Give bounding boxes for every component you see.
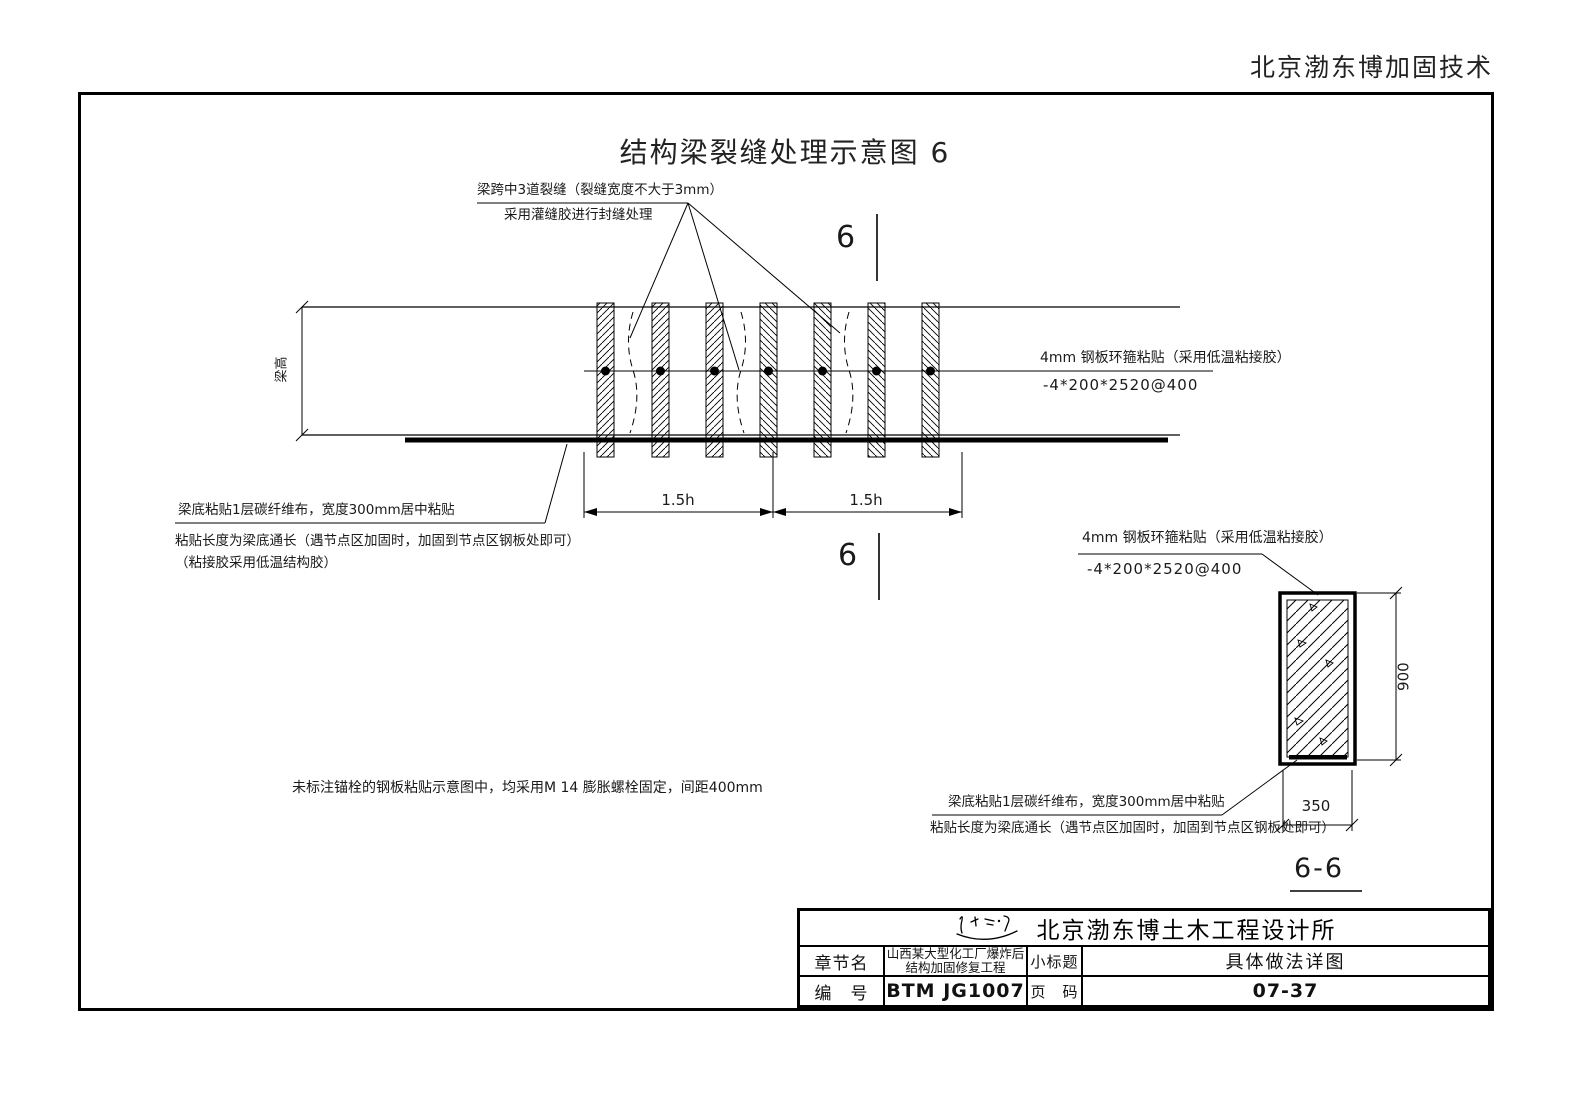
steel-plate bbox=[706, 303, 723, 457]
steel-plate bbox=[652, 303, 669, 457]
section-fiber-note-line2: 粘贴长度为梁底通长（遇节点区加固时，加固到节点区钢板处即可） bbox=[930, 821, 1335, 837]
section-mark-bottom-label: 6 bbox=[838, 539, 857, 574]
crack-note-line1: 梁跨中3道裂缝（裂缝宽度不大于3mm） bbox=[477, 183, 723, 199]
title-block-chapter-label: 章节名 bbox=[800, 945, 883, 975]
project-name-line1: 山西某大型化工厂爆炸后 bbox=[887, 947, 1025, 961]
title-block-page-value: 07-37 bbox=[1081, 975, 1488, 1005]
section-hoop-note-line1: 4mm 钢板环箍粘贴（采用低温粘接胶） bbox=[1082, 530, 1333, 546]
section-fiber-note-line1: 梁底粘贴1层碳纤维布，宽度300mm居中粘贴 bbox=[948, 795, 1225, 811]
section-concrete bbox=[1287, 600, 1348, 757]
carbon-fiber-strip bbox=[405, 438, 1168, 443]
anchor-bolt bbox=[710, 367, 719, 376]
crack-note-line2: 采用灌缝胶进行封缝处理 bbox=[504, 208, 653, 224]
steel-plate bbox=[760, 303, 777, 457]
title-block-header: 北京渤东博土木工程设计所 bbox=[800, 911, 1488, 945]
steel-plate bbox=[814, 303, 831, 457]
crack-line bbox=[845, 312, 853, 433]
anchor-bolt bbox=[818, 367, 827, 376]
title-block-number-value: BTM JG1007 bbox=[883, 975, 1026, 1005]
hoop-note-line1: 4mm 钢板环箍粘贴（采用低温粘接胶） bbox=[1040, 350, 1291, 366]
section-view-label: 6-6 bbox=[1294, 853, 1344, 884]
section-carbon-fiber bbox=[1289, 755, 1347, 760]
section-height-dim-label: 900 bbox=[1395, 657, 1412, 697]
section-width-dim-label: 350 bbox=[1288, 798, 1344, 815]
title-block-subtitle-value: 具体做法详图 bbox=[1081, 945, 1488, 975]
steel-plate bbox=[597, 303, 614, 457]
span-dim-left-label: 1.5h bbox=[646, 492, 710, 509]
company-logo bbox=[952, 913, 1027, 943]
fiber-note-line1: 梁底粘贴1层碳纤维布，宽度300mm居中粘贴 bbox=[178, 503, 455, 519]
anchor-bolt bbox=[601, 367, 610, 376]
title-block-project-name: 山西某大型化工厂爆炸后 结构加固修复工程 bbox=[883, 945, 1026, 975]
crack-line bbox=[629, 312, 637, 433]
title-block-subtitle-label: 小标题 bbox=[1026, 945, 1081, 975]
anchor-bolt-note: 未标注锚栓的钢板粘贴示意图中，均采用M 14 膨胀螺栓固定，间距400mm bbox=[292, 780, 763, 796]
title-block-number-label: 编 号 bbox=[800, 975, 883, 1005]
title-block: 北京渤东博土木工程设计所 章节名 山西某大型化工厂爆炸后 结构加固修复工程 小标… bbox=[797, 908, 1491, 1008]
anchor-bolt bbox=[656, 367, 665, 376]
anchor-bolt bbox=[764, 367, 773, 376]
title-block-page-label: 页 码 bbox=[1026, 975, 1081, 1005]
hoop-note-line2: -4*200*2520@400 bbox=[1043, 377, 1198, 394]
project-name-line2: 结构加固修复工程 bbox=[887, 961, 1025, 975]
anchor-bolt bbox=[926, 367, 935, 376]
fiber-note-line2: 粘贴长度为梁底通长（遇节点区加固时，加固到节点区钢板处即可） bbox=[175, 534, 580, 550]
crack-line bbox=[737, 312, 745, 433]
section-mark-top-label: 6 bbox=[836, 221, 855, 256]
beam-height-dimension bbox=[296, 301, 308, 441]
span-dim-right-label: 1.5h bbox=[834, 492, 898, 509]
anchor-bolt bbox=[872, 367, 881, 376]
title-block-company: 北京渤东博土木工程设计所 bbox=[1037, 911, 1337, 945]
steel-plate bbox=[868, 303, 885, 457]
drawing-title: 结构梁裂缝处理示意图 6 bbox=[618, 137, 952, 169]
fiber-note-line3: （粘接胶采用低温结构胶） bbox=[175, 556, 337, 572]
steel-plate-group bbox=[597, 303, 939, 457]
span-dimension bbox=[584, 452, 962, 518]
beam-height-label: 梁高 bbox=[276, 356, 291, 382]
section-hoop-note-line2: -4*200*2520@400 bbox=[1087, 561, 1242, 578]
section-note-leaders bbox=[932, 554, 1318, 815]
steel-plate bbox=[922, 303, 939, 457]
